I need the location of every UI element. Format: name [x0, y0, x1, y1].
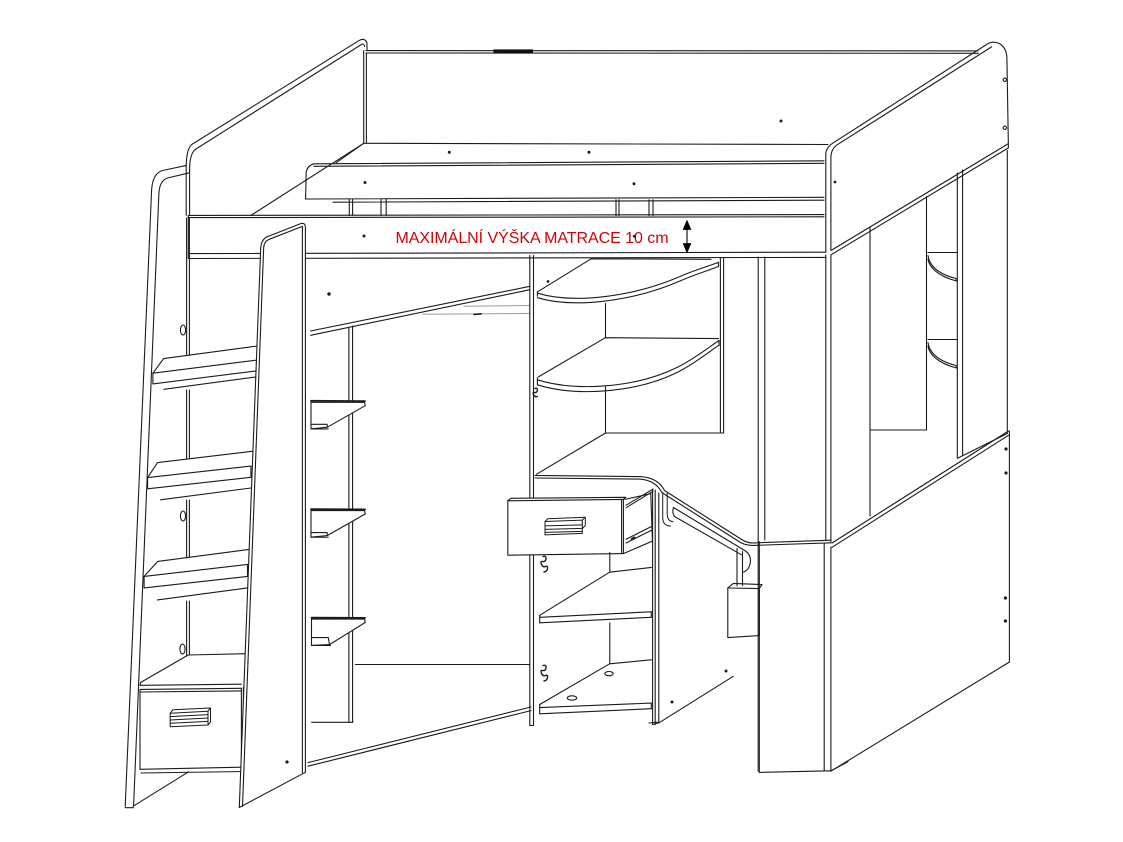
svg-text:MAXIMÁLNÍ VÝŠKA MATRACE 10 cm: MAXIMÁLNÍ VÝŠKA MATRACE 10 cm — [396, 228, 669, 247]
